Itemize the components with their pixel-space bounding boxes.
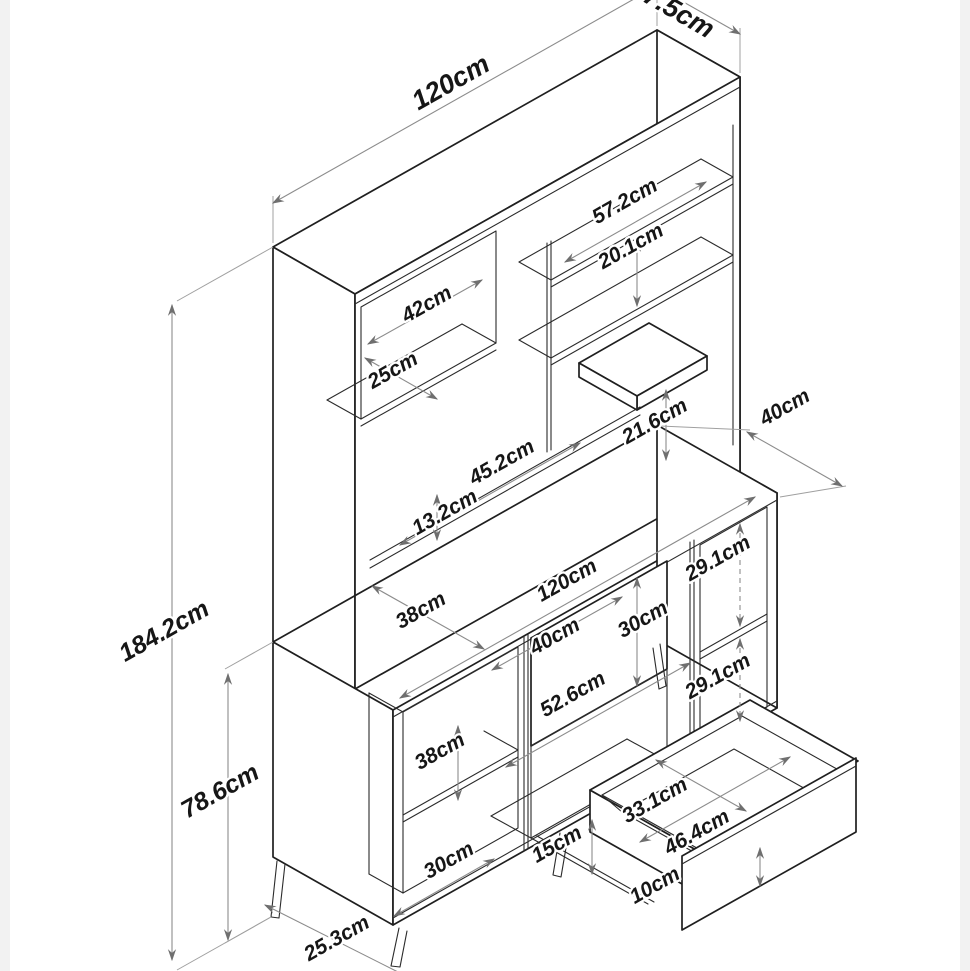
label-base-height: 78.6cm: [176, 758, 264, 824]
label-hutch-width: 120cm: [407, 48, 495, 116]
cabinet-line-art: 27.5cm 120cm 57.2cm 20.1cm 42cm 25cm 21.…: [0, 0, 970, 971]
base-left-panel: [273, 642, 393, 925]
label-hutch-depth: 27.5cm: [624, 0, 719, 44]
label-base-depth: 40cm: [755, 384, 814, 431]
dimension-diagram: 27.5cm 120cm 57.2cm 20.1cm 42cm 25cm 21.…: [0, 0, 970, 971]
label-leg-spacing: 25.3cm: [299, 911, 373, 967]
leg-front-left: [391, 928, 407, 967]
label-total-height: 184.2cm: [114, 595, 214, 668]
hutch-left-side-panel: [273, 247, 355, 689]
